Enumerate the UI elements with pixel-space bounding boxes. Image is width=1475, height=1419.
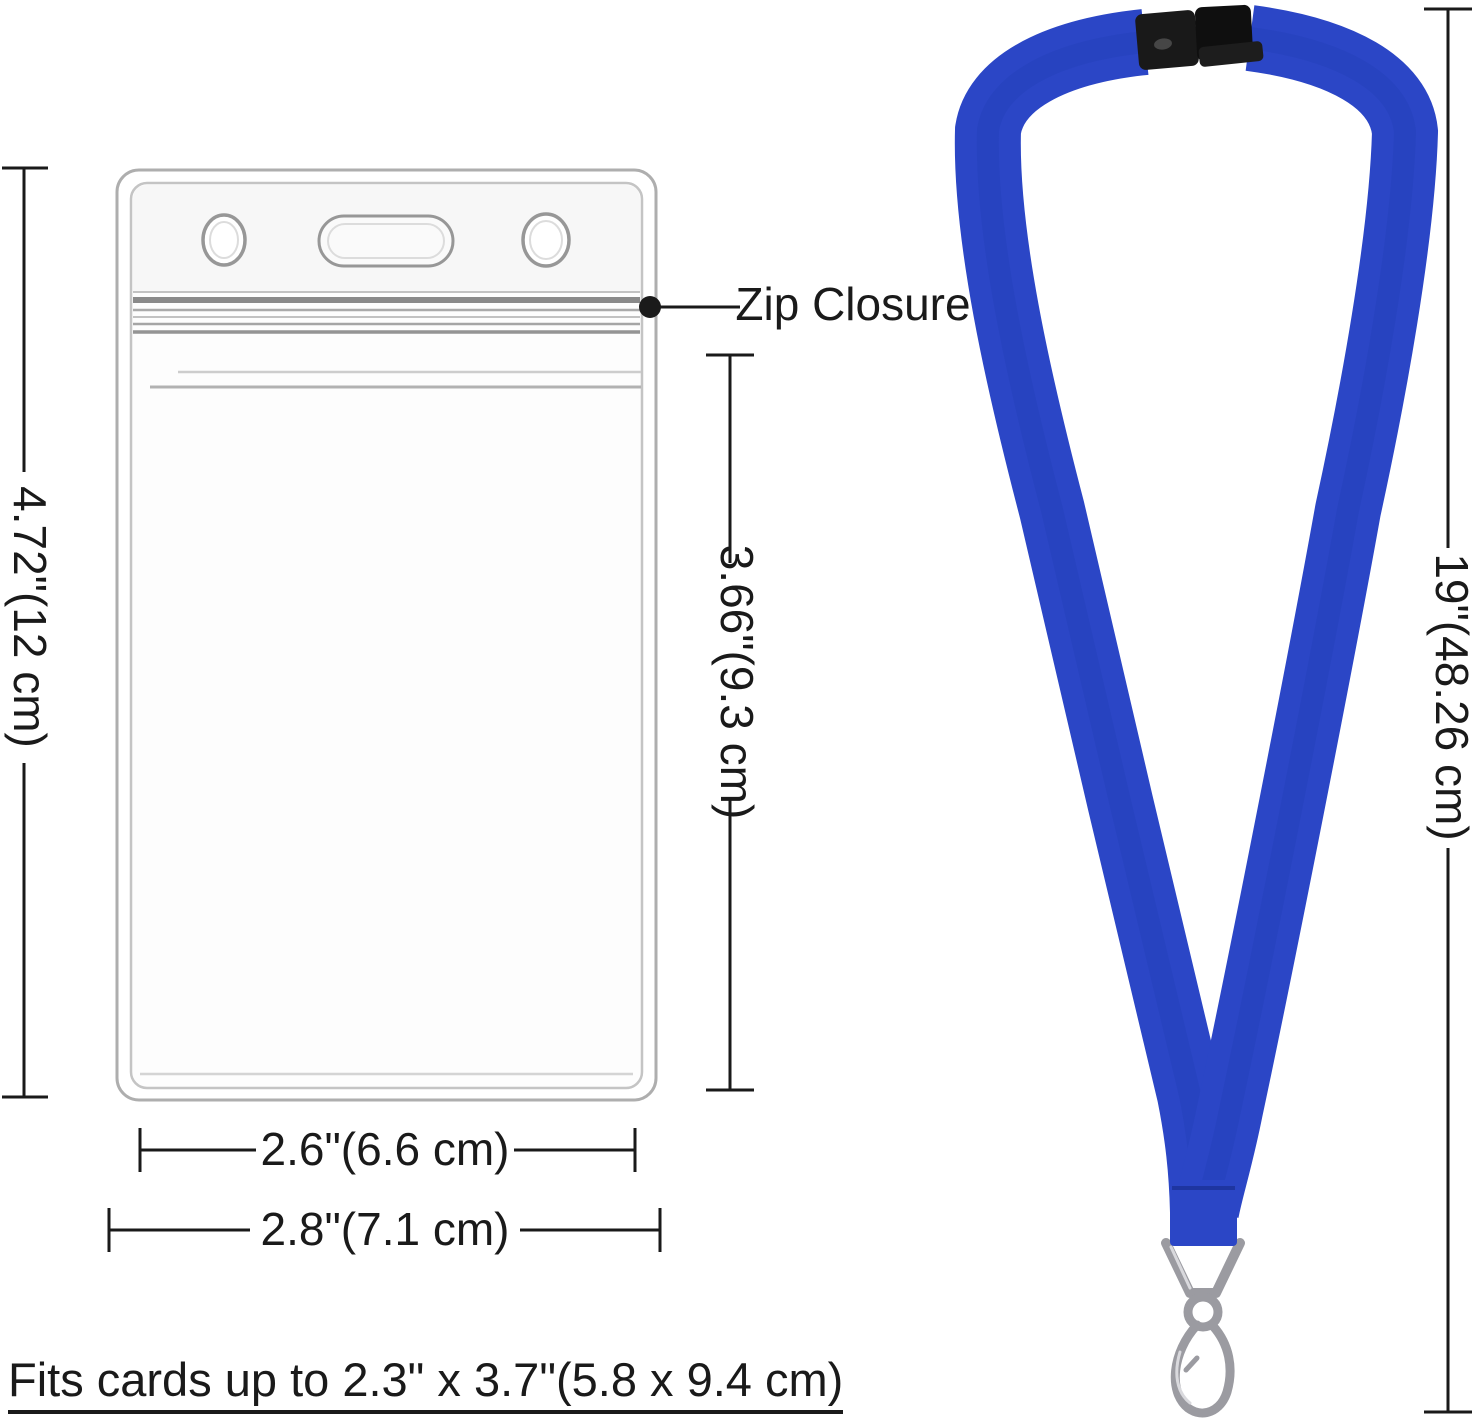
dim-label-holder-width: 2.8"(7.1 cm) — [261, 1206, 510, 1252]
zip-closure-label: Zip Closure — [735, 281, 970, 327]
swivel-hook — [1166, 1243, 1240, 1413]
product-diagram: 4.72"(12 cm) 3.66"(9.3 cm) 19"(48.26 cm)… — [0, 0, 1475, 1419]
dim-label-pocket-width: 2.6"(6.6 cm) — [261, 1126, 510, 1172]
dim-label-pocket-height: 3.66"(9.3 cm) — [714, 545, 760, 820]
fits-cards-note-text: Fits cards up to 2.3" x 3.7"(5.8 x 9.4 c… — [8, 1356, 843, 1414]
badge-holder-inner — [131, 183, 642, 1088]
breakaway-buckle — [1135, 5, 1264, 71]
zip-closure-callout-dot — [639, 296, 661, 318]
lanyard — [988, 5, 1405, 1413]
dim-label-holder-height: 4.72"(12 cm) — [7, 486, 53, 748]
badge-holder — [117, 170, 656, 1100]
fits-cards-note: Fits cards up to 2.3" x 3.7"(5.8 x 9.4 c… — [8, 1356, 843, 1414]
dim-label-lanyard-length: 19"(48.26 cm) — [1429, 553, 1475, 840]
